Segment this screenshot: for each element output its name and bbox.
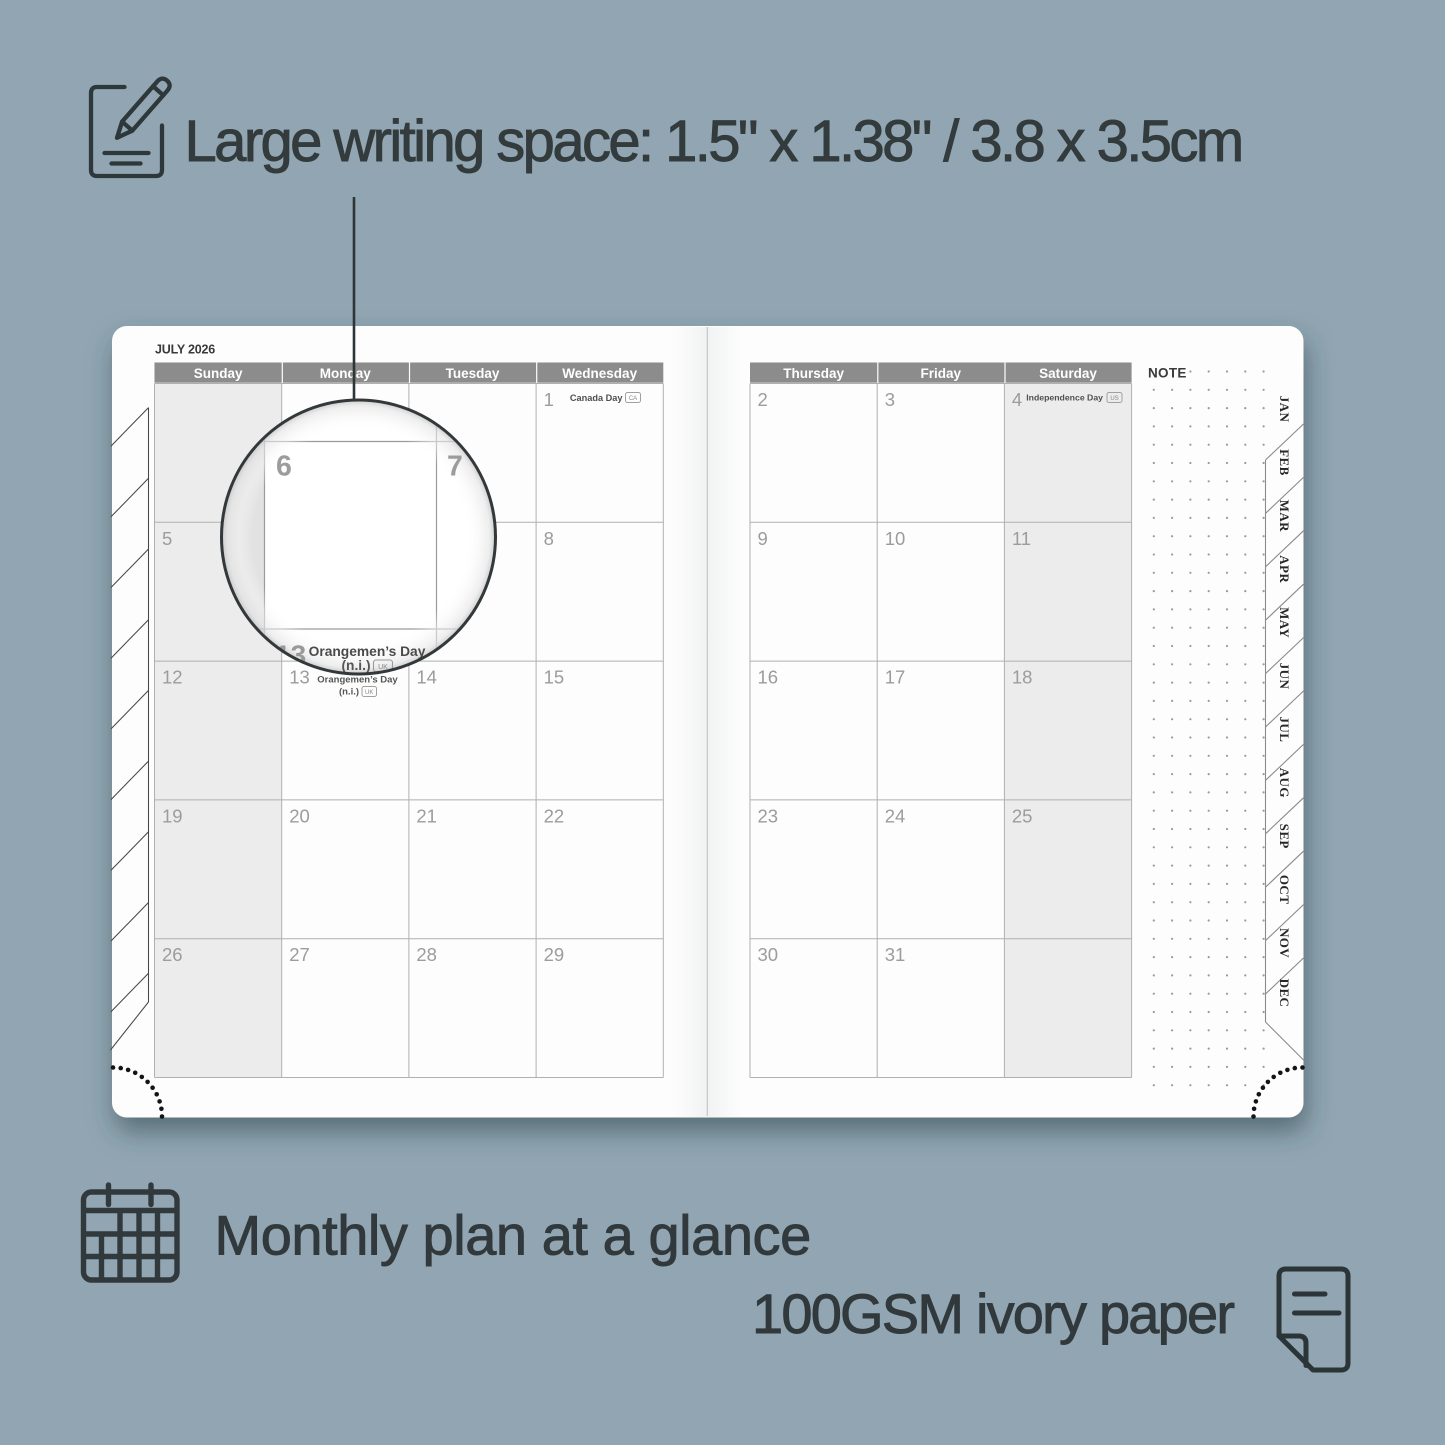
svg-text:8: 8 <box>544 528 554 549</box>
svg-text:7: 7 <box>447 451 463 483</box>
svg-text:(n.i.): (n.i.) <box>339 687 359 698</box>
svg-text:11: 11 <box>1012 528 1031 549</box>
svg-text:(n.i.): (n.i.) <box>341 658 370 673</box>
svg-text:30: 30 <box>758 944 779 965</box>
svg-text:Monday: Monday <box>320 366 371 381</box>
svg-text:19: 19 <box>162 805 183 826</box>
svg-text:13: 13 <box>289 667 310 688</box>
svg-text:JAN: JAN <box>1277 396 1292 423</box>
svg-text:NOTE: NOTE <box>1148 366 1187 381</box>
svg-text:25: 25 <box>1012 805 1033 826</box>
svg-text:26: 26 <box>162 944 183 965</box>
svg-text:DEC: DEC <box>1277 979 1292 1008</box>
svg-text:9: 9 <box>758 528 768 549</box>
svg-text:15: 15 <box>544 667 565 688</box>
svg-text:29: 29 <box>544 944 565 965</box>
svg-text:Orangemen’s Day: Orangemen’s Day <box>309 644 426 659</box>
svg-text:16: 16 <box>758 667 779 688</box>
svg-text:Friday: Friday <box>921 366 962 381</box>
svg-text:FEB: FEB <box>1277 449 1292 475</box>
svg-text:Thursday: Thursday <box>783 366 844 381</box>
svg-text:JULY 2026: JULY 2026 <box>155 343 215 357</box>
svg-text:3: 3 <box>885 389 895 410</box>
svg-text:Large writing space: 1.5" x 1.: Large writing space: 1.5" x 1.38" / 3.8 … <box>185 109 1242 174</box>
svg-text:Monthly plan at a glance: Monthly plan at a glance <box>215 1204 811 1267</box>
svg-text:Orangemen’s Day: Orangemen’s Day <box>317 675 398 686</box>
svg-text:CA: CA <box>629 396 637 402</box>
svg-text:10: 10 <box>885 528 906 549</box>
svg-text:5: 5 <box>162 528 172 549</box>
svg-text:UK: UK <box>365 690 373 696</box>
svg-text:SEP: SEP <box>1277 824 1292 849</box>
svg-text:27: 27 <box>289 944 310 965</box>
svg-text:6: 6 <box>276 451 292 483</box>
svg-text:18: 18 <box>1012 667 1033 688</box>
svg-text:23: 23 <box>758 805 779 826</box>
svg-text:Sunday: Sunday <box>194 366 243 381</box>
svg-text:Tuesday: Tuesday <box>446 366 500 381</box>
svg-text:24: 24 <box>885 805 906 826</box>
svg-text:4: 4 <box>1012 389 1022 410</box>
svg-text:JUN: JUN <box>1277 663 1292 690</box>
svg-text:APR: APR <box>1277 555 1292 583</box>
svg-text:21: 21 <box>416 805 437 826</box>
svg-text:17: 17 <box>885 667 906 688</box>
svg-text:OCT: OCT <box>1277 875 1292 904</box>
svg-text:JUL: JUL <box>1277 717 1292 743</box>
svg-text:2: 2 <box>758 389 768 410</box>
svg-text:MAY: MAY <box>1277 607 1292 638</box>
svg-text:14: 14 <box>416 667 437 688</box>
svg-text:1: 1 <box>544 389 554 410</box>
svg-text:20: 20 <box>289 805 310 826</box>
svg-text:Independence Day: Independence Day <box>1026 393 1103 403</box>
svg-text:MAR: MAR <box>1277 500 1292 532</box>
svg-text:Canada Day: Canada Day <box>570 393 623 403</box>
svg-text:12: 12 <box>162 667 183 688</box>
svg-text:100GSM ivory paper: 100GSM ivory paper <box>752 1282 1234 1345</box>
svg-text:Wednesday: Wednesday <box>562 366 637 381</box>
svg-text:22: 22 <box>544 805 565 826</box>
svg-text:US: US <box>1110 396 1118 402</box>
svg-text:AUG: AUG <box>1277 768 1292 798</box>
svg-text:NOV: NOV <box>1277 928 1292 958</box>
svg-text:28: 28 <box>416 944 437 965</box>
svg-text:Saturday: Saturday <box>1039 366 1097 381</box>
svg-text:31: 31 <box>885 944 906 965</box>
